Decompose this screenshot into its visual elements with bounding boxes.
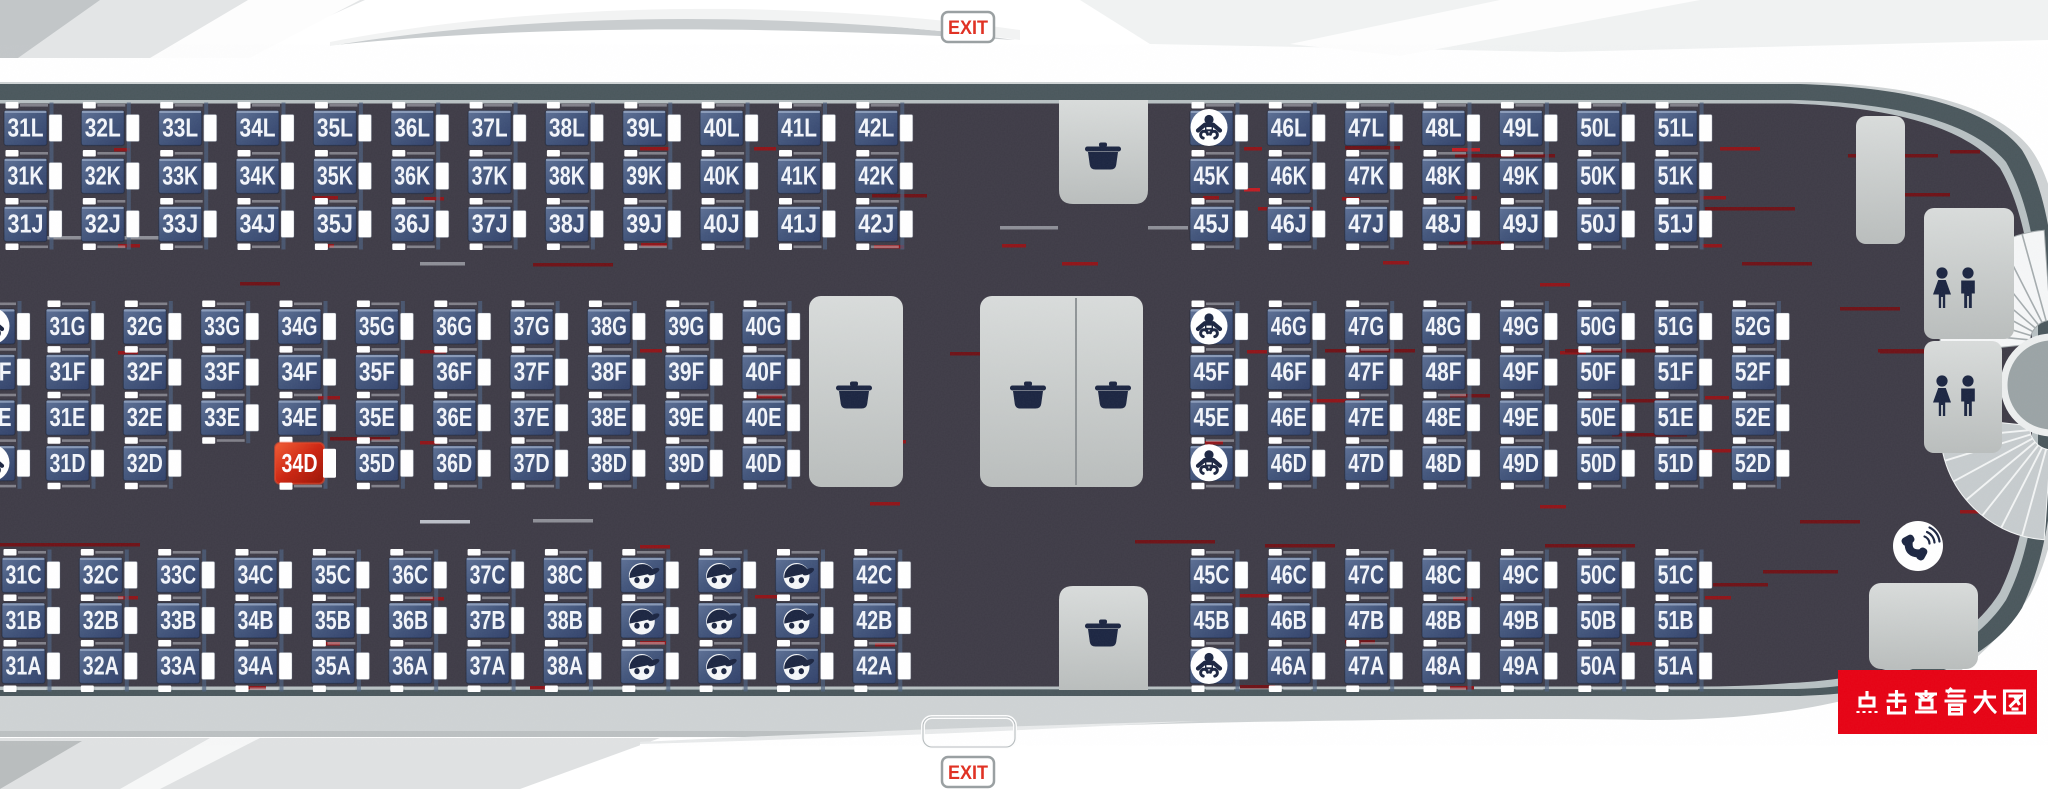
svg-text:EXIT: EXIT	[948, 763, 988, 784]
svg-text:EXIT: EXIT	[948, 18, 988, 39]
